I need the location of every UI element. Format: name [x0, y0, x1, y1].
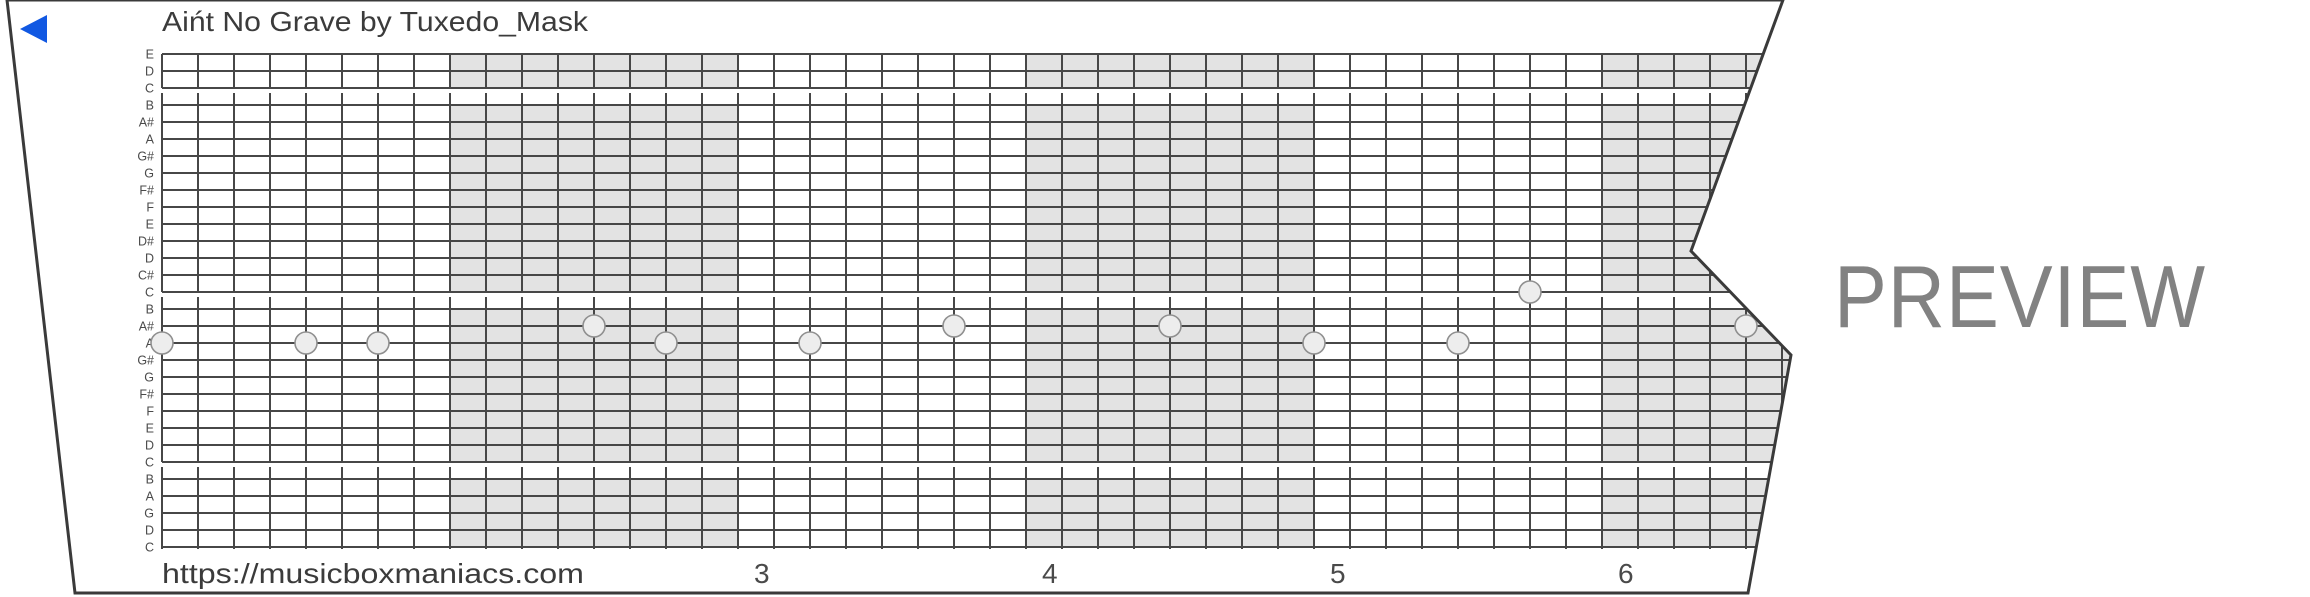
- note-row-label: G: [144, 167, 154, 181]
- note-row-label: C#: [138, 269, 154, 283]
- note-row-label: D#: [138, 235, 154, 249]
- note-c: [1519, 281, 1541, 303]
- strip-title: Aińt No Grave by Tuxedo_Mask: [162, 6, 589, 37]
- note-row-label: B: [146, 303, 154, 317]
- note-row-label: G: [144, 371, 154, 385]
- note-row-label: B: [146, 99, 154, 113]
- note-row-label: A: [146, 133, 155, 147]
- note-a: [799, 332, 821, 354]
- note-row-label: F#: [139, 184, 154, 198]
- note-row-label: F: [146, 405, 154, 419]
- note-row-label: G#: [137, 354, 154, 368]
- note-row-label: C: [145, 541, 154, 555]
- note-row-label: G: [144, 507, 154, 521]
- note-row-label: D: [145, 439, 154, 453]
- note-row-label: E: [146, 218, 154, 232]
- note-row-label: B: [146, 473, 154, 487]
- note-row-label: A#: [139, 116, 154, 130]
- note-asharp: [943, 315, 965, 337]
- note-a: [367, 332, 389, 354]
- note-row-label: E: [146, 48, 154, 62]
- note-row-label: A#: [139, 320, 154, 334]
- note-row-label: D: [145, 65, 154, 79]
- note-row-label: F#: [139, 388, 154, 402]
- preview-canvas: EDCBA#AG#GF#FED#DC#CBA#AG#GF#FEDCBAGDC 3…: [0, 0, 2310, 597]
- note-row-label: C: [145, 82, 154, 96]
- note-row-label: D: [145, 252, 154, 266]
- note-row-label: F: [146, 201, 154, 215]
- measure-number: 6: [1618, 558, 1634, 589]
- strip-url: https://musicboxmaniacs.com: [162, 558, 584, 589]
- note-row-label: E: [146, 422, 154, 436]
- measure-number: 4: [1042, 558, 1058, 589]
- measure-number: 3: [754, 558, 770, 589]
- note-a: [1303, 332, 1325, 354]
- note-a: [151, 332, 173, 354]
- note-row-label: C: [145, 456, 154, 470]
- note-asharp: [1159, 315, 1181, 337]
- note-a: [1447, 332, 1469, 354]
- preview-watermark: PREVIEW: [1834, 247, 2206, 346]
- note-asharp: [583, 315, 605, 337]
- note-row-label: D: [145, 524, 154, 538]
- music-strip-preview[interactable]: EDCBA#AG#GF#FED#DC#CBA#AG#GF#FEDCBAGDC 3…: [0, 0, 2310, 597]
- note-row-label: C: [145, 286, 154, 300]
- note-row-label: G#: [137, 150, 154, 164]
- note-a: [295, 332, 317, 354]
- measure-number: 5: [1330, 558, 1346, 589]
- note-a: [655, 332, 677, 354]
- note-row-label: A: [146, 490, 155, 504]
